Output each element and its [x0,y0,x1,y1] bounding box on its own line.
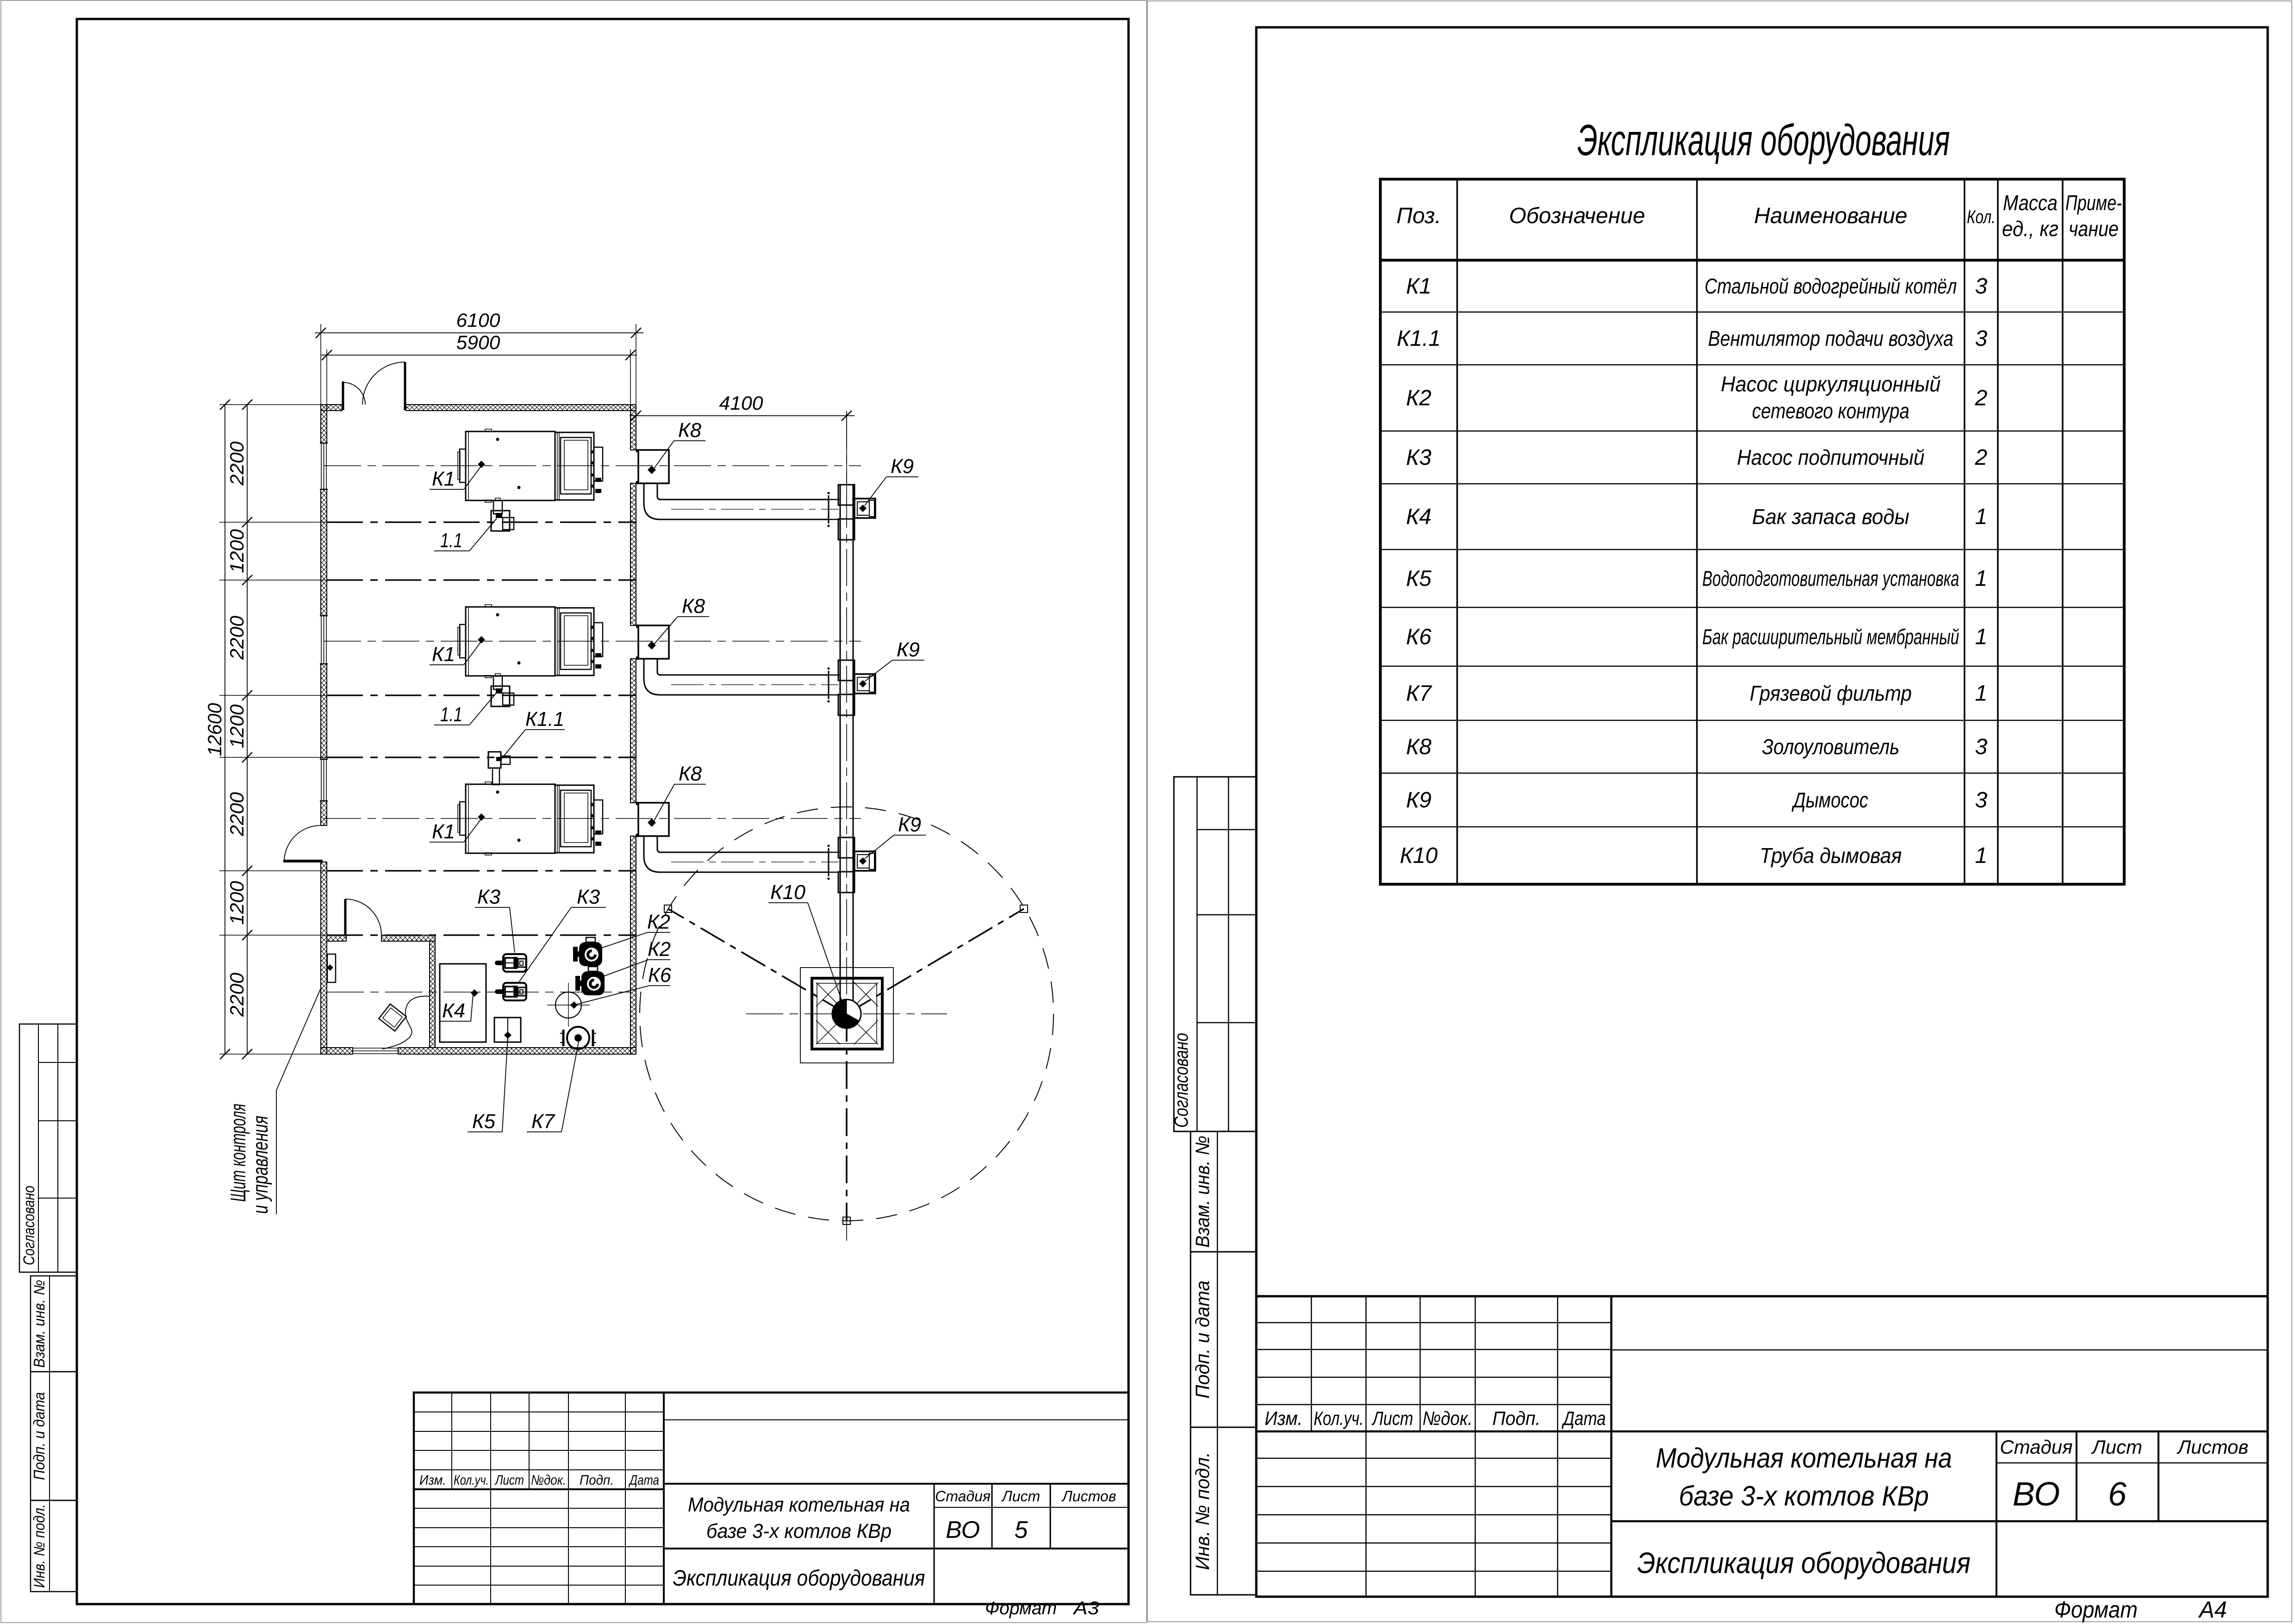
svg-text:Согласовано: Согласовано [20,1186,38,1265]
svg-text:2200: 2200 [226,972,248,1017]
svg-text:К8: К8 [679,762,702,785]
svg-text:Грязевой фильтр: Грязевой фильтр [1750,681,1912,706]
svg-text:К5: К5 [472,1110,496,1133]
svg-text:№док.: №док. [1422,1407,1472,1429]
svg-text:Насос циркуляционный: Насос циркуляционный [1721,372,1941,396]
svg-text:К1: К1 [432,468,455,490]
svg-text:К10: К10 [770,881,806,904]
svg-text:К8: К8 [1406,735,1432,759]
svg-text:Дата: Дата [1562,1407,1606,1429]
svg-text:Дата: Дата [629,1473,659,1488]
svg-text:К8: К8 [682,595,705,618]
svg-text:Водоподготовительная установка: Водоподготовительная установка [1703,567,1959,591]
svg-text:Лист: Лист [2091,1436,2142,1458]
svg-text:Инв. № подл.: Инв. № подл. [1191,1452,1213,1570]
svg-text:К2: К2 [1406,386,1432,411]
svg-text:К2: К2 [648,938,671,961]
svg-text:Стадия: Стадия [2000,1436,2072,1458]
svg-text:К1: К1 [1406,274,1432,299]
svg-text:Формат: Формат [2054,1597,2138,1623]
svg-text:Изм.: Изм. [1265,1407,1303,1429]
svg-text:5900: 5900 [456,331,501,353]
svg-text:сетевого контура: сетевого контура [1752,399,1909,423]
svg-text:Модульная котельная на: Модульная котельная на [688,1493,910,1516]
svg-text:ВО: ВО [2013,1476,2060,1513]
svg-text:1: 1 [1975,843,1988,868]
svg-text:1200: 1200 [226,704,248,749]
svg-text:К7: К7 [1406,681,1433,706]
svg-text:К3: К3 [1406,445,1432,470]
svg-text:К9: К9 [898,813,921,836]
svg-text:К5: К5 [1406,567,1432,591]
svg-text:К1: К1 [432,643,455,666]
svg-text:базе 3-х котлов КВр: базе 3-х котлов КВр [706,1520,892,1543]
svg-text:1.1: 1.1 [440,703,462,726]
svg-text:Кол.уч.: Кол.уч. [454,1473,489,1488]
svg-text:А3: А3 [1073,1598,1099,1618]
svg-text:Листов: Листов [2177,1436,2249,1458]
svg-text:1: 1 [1975,681,1988,706]
svg-text:6100: 6100 [456,309,501,331]
svg-text:2: 2 [1975,445,1988,470]
svg-text:Насос подпиточный: Насос подпиточный [1737,445,1925,469]
svg-text:К1.1: К1.1 [525,708,564,731]
svg-text:Подп.: Подп. [1492,1407,1540,1429]
svg-text:2200: 2200 [226,441,248,486]
svg-text:Стальной водогрейный котёл: Стальной водогрейный котёл [1705,274,1957,298]
svg-text:3: 3 [1975,274,1988,299]
svg-text:Щит контроля: Щит контроля [226,1104,250,1202]
svg-text:базе 3-х котлов КВр: базе 3-х котлов КВр [1679,1480,1929,1512]
svg-text:К1.1: К1.1 [1397,326,1441,351]
svg-text:Дымосос: Дымосос [1791,788,1868,812]
svg-text:Инв. № подл.: Инв. № подл. [31,1504,48,1588]
svg-text:К1: К1 [432,820,455,843]
svg-text:Лист: Лист [494,1473,524,1488]
svg-text:Экспликация оборудования: Экспликация оборудования [673,1566,925,1591]
svg-text:2: 2 [1975,386,1988,411]
svg-text:Подп. и дата: Подп. и дата [1191,1280,1213,1399]
svg-text:Бак расширительный мембранный: Бак расширительный мембранный [1703,625,1959,649]
svg-text:Лист: Лист [1372,1407,1413,1429]
svg-text:Листов: Листов [1061,1488,1116,1505]
svg-text:К9: К9 [897,638,920,661]
svg-text:К4: К4 [1406,505,1432,529]
svg-text:Формат: Формат [985,1598,1057,1618]
svg-text:К6: К6 [648,964,672,987]
svg-text:1200: 1200 [226,881,248,925]
svg-text:3: 3 [1975,735,1988,759]
svg-text:1.1: 1.1 [440,529,462,552]
svg-text:Взам. инв. №: Взам. инв. № [31,1280,48,1368]
svg-text:Согласовано: Согласовано [1170,1033,1192,1128]
svg-text:Наименование: Наименование [1754,204,1907,228]
svg-text:Вентилятор подачи воздуха: Вентилятор подачи воздуха [1708,326,1953,350]
svg-text:1200: 1200 [226,529,248,573]
svg-text:ед., кг: ед., кг [2002,217,2058,241]
svg-text:К9: К9 [891,455,914,478]
svg-text:Модульная котельная на: Модульная котельная на [1656,1443,1952,1474]
svg-text:Экспликация оборудования: Экспликация оборудования [1578,116,1950,165]
svg-text:Подп. и дата: Подп. и дата [31,1392,48,1480]
svg-text:5: 5 [1015,1517,1029,1543]
svg-text:ВО: ВО [946,1517,980,1543]
svg-text:2200: 2200 [226,615,248,660]
svg-text:А4: А4 [2198,1597,2227,1623]
svg-text:1: 1 [1975,567,1988,591]
svg-text:12600: 12600 [204,703,225,756]
svg-text:чание: чание [2069,217,2119,241]
svg-text:К6: К6 [1406,625,1432,650]
svg-text:К7: К7 [531,1110,555,1133]
svg-text:1: 1 [1975,625,1988,650]
svg-text:Изм.: Изм. [419,1473,446,1488]
svg-text:Поз.: Поз. [1397,204,1441,228]
svg-text:К3: К3 [577,886,600,908]
svg-text:К3: К3 [477,886,501,908]
svg-text:Труба дымовая: Труба дымовая [1760,843,1902,868]
svg-text:4100: 4100 [719,392,764,414]
svg-text:Обозначение: Обозначение [1509,204,1645,228]
svg-text:6: 6 [2108,1476,2127,1513]
svg-text:Экспликация оборудования: Экспликация оборудования [1637,1546,1971,1580]
svg-text:3: 3 [1975,788,1988,812]
svg-text:3: 3 [1975,326,1988,351]
svg-text:№док.: №док. [531,1473,566,1488]
svg-text:К9: К9 [1406,788,1432,812]
svg-text:2200: 2200 [226,792,248,837]
svg-text:Стадия: Стадия [935,1488,991,1505]
svg-text:К8: К8 [678,419,702,442]
svg-text:Приме-: Приме- [2065,191,2122,215]
svg-text:Золоуловитель: Золоуловитель [1762,735,1900,759]
svg-text:К4: К4 [442,999,465,1022]
svg-text:К10: К10 [1400,843,1438,868]
svg-text:Кол.: Кол. [1967,207,1996,227]
svg-text:Подп.: Подп. [580,1473,614,1488]
svg-text:К2: К2 [647,911,670,933]
svg-text:Взам. инв. №: Взам. инв. № [1191,1136,1213,1248]
svg-text:Бак запаса воды: Бак запаса воды [1752,505,1909,529]
svg-text:Масса: Масса [2003,191,2058,215]
svg-text:и управления: и управления [248,1116,272,1214]
svg-text:1: 1 [1975,505,1988,529]
svg-text:Лист: Лист [1001,1488,1040,1505]
svg-text:Кол.уч.: Кол.уч. [1314,1407,1364,1429]
